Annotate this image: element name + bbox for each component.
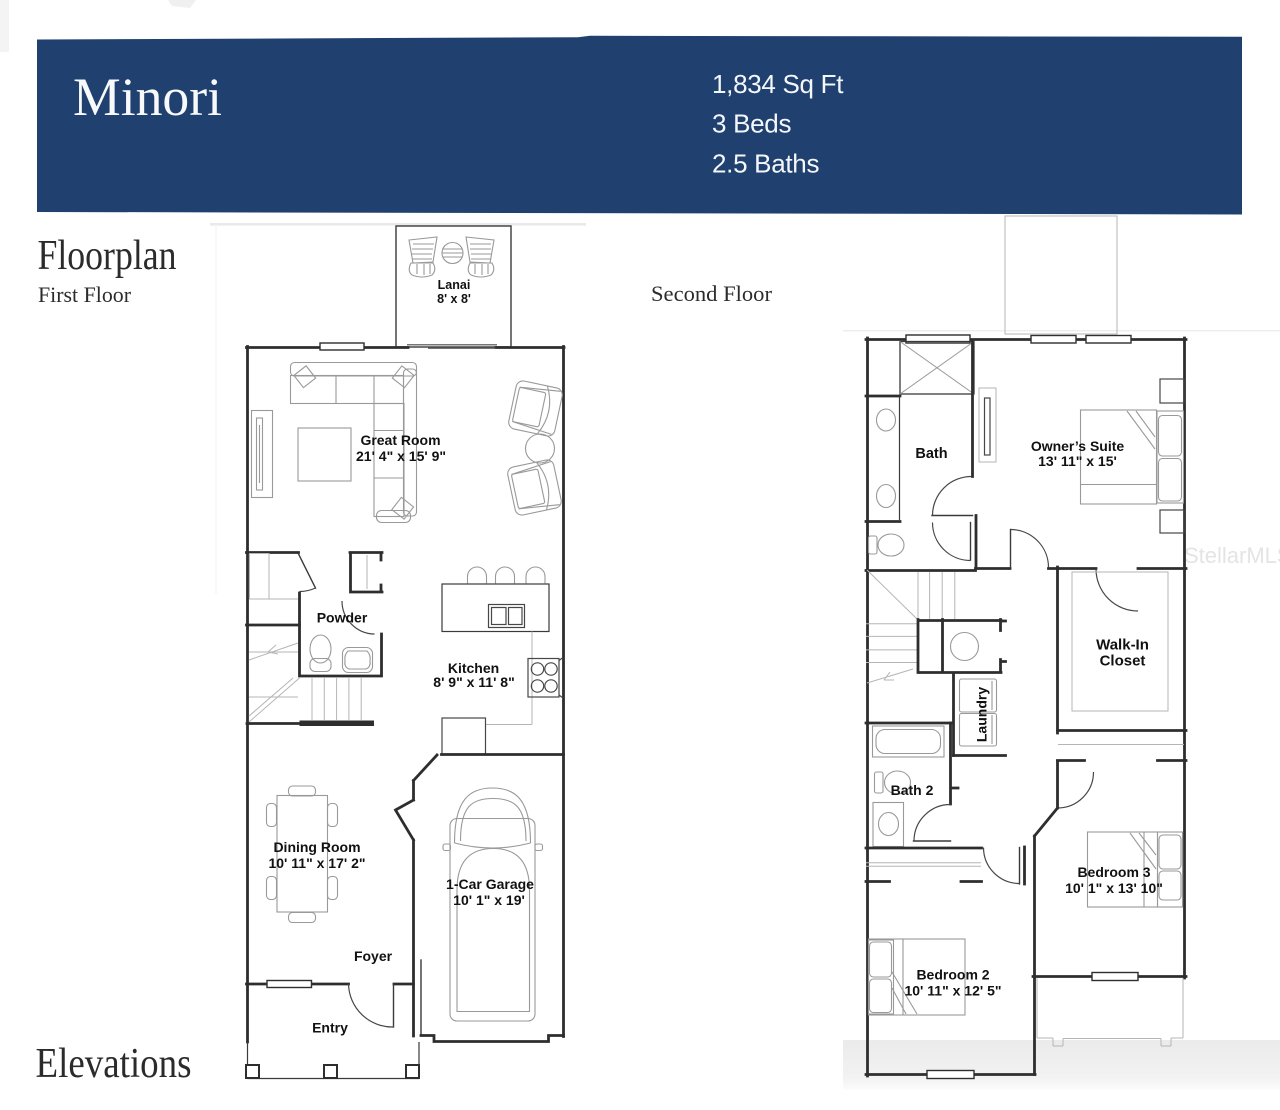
svg-text:Entry: Entry: [312, 1020, 348, 1036]
svg-text:Lanai: Lanai: [438, 278, 471, 292]
svg-text:10' 11" x 17' 2": 10' 11" x 17' 2": [268, 855, 365, 871]
svg-text:10' 11" x 12' 5": 10' 11" x 12' 5": [904, 983, 1001, 999]
svg-text:StellarMLS: StellarMLS: [1184, 543, 1280, 568]
svg-text:10' 1" x 13' 10": 10' 1" x 13' 10": [1065, 880, 1163, 896]
svg-text:Closet: Closet: [1100, 653, 1146, 670]
svg-text:Foyer: Foyer: [354, 948, 393, 964]
svg-text:8' 9" x 11' 8": 8' 9" x 11' 8": [433, 674, 514, 690]
svg-text:Great Room: Great Room: [360, 432, 440, 448]
svg-text:Owner’s Suite: Owner’s Suite: [1031, 438, 1125, 454]
svg-text:1-Car Garage: 1-Car Garage: [446, 876, 534, 892]
svg-text:10' 1" x 19': 10' 1" x 19': [453, 892, 525, 908]
svg-text:1,834 Sq Ft: 1,834 Sq Ft: [712, 69, 844, 99]
svg-text:Dining Room: Dining Room: [273, 839, 360, 855]
svg-text:8' x 8': 8' x 8': [437, 292, 471, 306]
svg-text:13' 11" x 15': 13' 11" x 15': [1038, 453, 1117, 469]
svg-text:Bath 2: Bath 2: [891, 782, 934, 798]
svg-text:Bedroom 3: Bedroom 3: [1077, 864, 1150, 880]
svg-text:2.5 Baths: 2.5 Baths: [712, 149, 819, 179]
svg-text:Walk-In: Walk-In: [1096, 637, 1149, 654]
svg-text:First Floor: First Floor: [38, 282, 132, 307]
svg-text:Bath: Bath: [915, 446, 947, 462]
svg-text:21' 4" x 15' 9": 21' 4" x 15' 9": [356, 448, 446, 464]
svg-text:Minori: Minori: [73, 67, 222, 127]
svg-text:Second Floor: Second Floor: [651, 281, 773, 306]
svg-text:3 Beds: 3 Beds: [712, 109, 791, 139]
svg-text:Laundry: Laundry: [974, 687, 990, 742]
svg-text:Bedroom 2: Bedroom 2: [916, 967, 989, 983]
svg-text:Powder: Powder: [317, 610, 368, 626]
svg-text:Elevations: Elevations: [36, 1041, 192, 1087]
svg-text:Floorplan: Floorplan: [38, 233, 177, 279]
